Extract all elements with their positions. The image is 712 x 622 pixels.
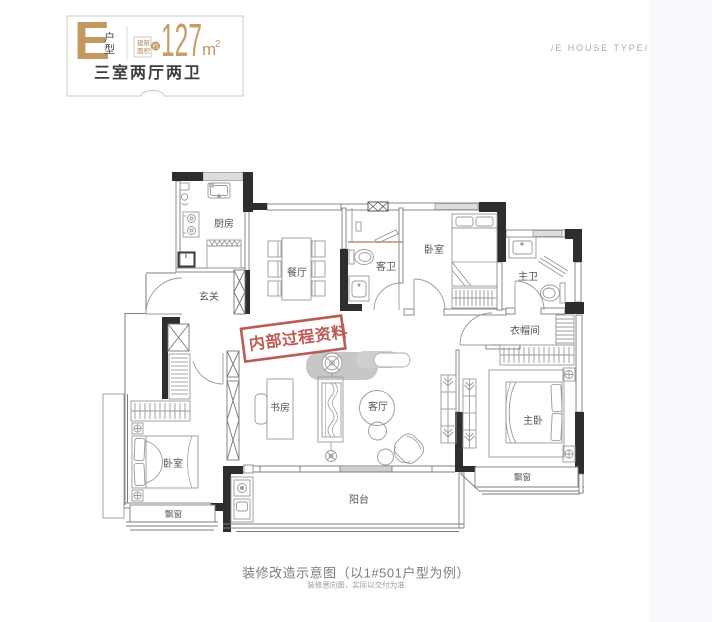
svg-text:户: 户 <box>104 30 115 44</box>
svg-text:飘窗: 飘窗 <box>514 472 531 482</box>
svg-text:餐厅: 餐厅 <box>287 266 307 279</box>
svg-text:厨房: 厨房 <box>214 217 234 230</box>
svg-text:飘窗: 飘窗 <box>165 509 182 519</box>
svg-text:面积: 面积 <box>137 46 151 55</box>
svg-text:约: 约 <box>153 43 159 51</box>
svg-text:装修改造示意图（以1#501户型为例）: 装修改造示意图（以1#501户型为例） <box>242 566 470 581</box>
svg-text:装修意向图，实际以交付为准: 装修意向图，实际以交付为准 <box>307 580 405 590</box>
svg-text:/E HOUSE TYPE/: /E HOUSE TYPE/ <box>551 43 649 53</box>
svg-text:型: 型 <box>104 42 115 56</box>
svg-text:主卫: 主卫 <box>518 271 538 283</box>
svg-text:2: 2 <box>215 39 221 50</box>
svg-text:衣帽间: 衣帽间 <box>510 324 540 337</box>
svg-text:主卧: 主卧 <box>523 414 543 427</box>
svg-text:玄关: 玄关 <box>199 290 219 303</box>
svg-text:127: 127 <box>161 14 202 66</box>
svg-text:客厅: 客厅 <box>368 400 388 413</box>
svg-text:客卫: 客卫 <box>376 260 396 273</box>
svg-text:三室两厅两卫: 三室两厅两卫 <box>94 63 202 82</box>
svg-text:卧室: 卧室 <box>163 457 183 470</box>
svg-text:建筑: 建筑 <box>137 38 151 47</box>
svg-text:书房: 书房 <box>270 401 290 414</box>
svg-text:阳台: 阳台 <box>349 493 369 506</box>
svg-text:卧室: 卧室 <box>424 243 444 256</box>
